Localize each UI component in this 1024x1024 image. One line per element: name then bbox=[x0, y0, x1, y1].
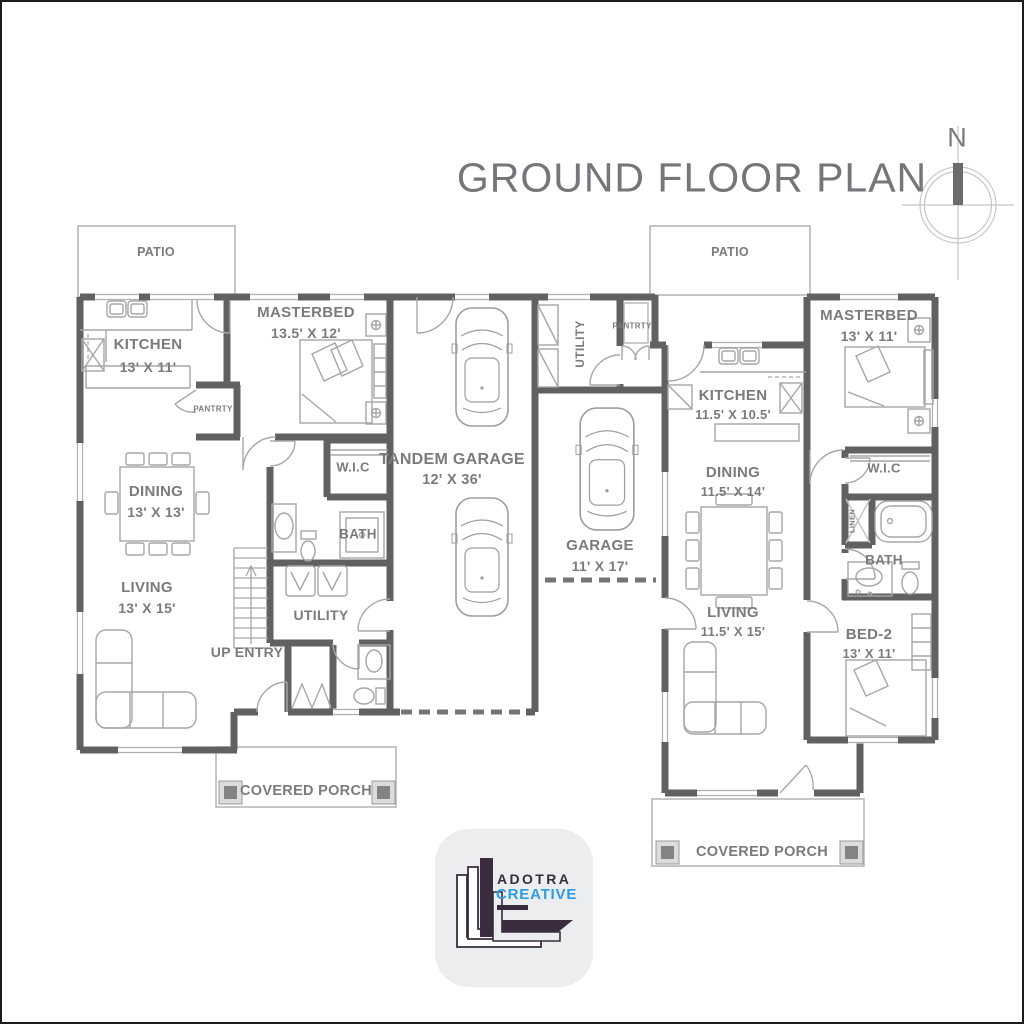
label-patio-left: PATIO bbox=[137, 245, 175, 259]
dining-right-table bbox=[686, 494, 782, 608]
label-masterbed-left: MASTERBED 13.5' X 12' bbox=[257, 303, 355, 343]
adotra-creative-logo: ADOTRA CREATIVE bbox=[435, 829, 593, 987]
door-living-garage-right bbox=[665, 598, 696, 629]
toilet-bowl bbox=[902, 572, 918, 594]
door-bed2 bbox=[807, 601, 838, 632]
toilet-tank bbox=[301, 531, 316, 539]
door-masterbed-right bbox=[810, 450, 844, 484]
label-masterbed-right: MASTERBED 13' X 11' bbox=[820, 306, 918, 346]
compass-north-label: N bbox=[947, 123, 967, 154]
label-pantry-right: PANTRTY bbox=[612, 322, 651, 331]
label-tandem-garage: TANDEM GARAGE 12' X 36' bbox=[379, 450, 525, 490]
car-icon bbox=[576, 408, 638, 530]
label-bath-right: BATH bbox=[865, 553, 903, 568]
garage-doors bbox=[401, 580, 656, 712]
door-hall-bath-left bbox=[270, 441, 295, 466]
bed-icon bbox=[846, 660, 926, 736]
label-garage-right: GARAGE 11' X 17' bbox=[566, 535, 634, 577]
door-masterbed-left bbox=[243, 437, 276, 470]
label-porch-right: COVERED PORCH bbox=[696, 844, 828, 860]
page-title: GROUND FLOOR PLAN bbox=[457, 155, 927, 202]
toilet-bowl bbox=[301, 541, 315, 561]
door-utility-garage bbox=[358, 599, 390, 631]
label-living-left: LIVING 13' X 15' bbox=[118, 578, 176, 618]
label-linen: LINEN bbox=[848, 509, 857, 533]
label-bed2: BED-2 13' X 11' bbox=[843, 625, 896, 663]
washer-dryer-icon bbox=[286, 566, 347, 596]
label-porch-left: COVERED PORCH bbox=[240, 783, 372, 799]
label-kitchen-right: KITCHEN 11.5' X 10.5' bbox=[695, 386, 771, 424]
label-up-entry: UP ENTRY bbox=[211, 644, 283, 660]
logo-brand-name: ADOTRA bbox=[497, 871, 571, 887]
stairs-up-entry bbox=[234, 548, 268, 648]
door-entry-right bbox=[780, 765, 813, 793]
label-utility-right: UTILITY bbox=[573, 320, 587, 367]
door-tandem-side bbox=[417, 297, 453, 333]
sink-oval-icon bbox=[275, 513, 293, 539]
logo-divider-bar bbox=[497, 905, 528, 910]
door-pantry-right bbox=[622, 346, 649, 360]
label-kitchen-left: KITCHEN 13' X 11' bbox=[114, 334, 183, 378]
sofa-right-icon bbox=[684, 642, 766, 734]
door-entry-left bbox=[257, 682, 287, 712]
logo-brand-tagline: CREATIVE bbox=[496, 886, 577, 903]
door-powder bbox=[333, 643, 359, 669]
label-patio-right: PATIO bbox=[711, 245, 749, 259]
island-icon bbox=[715, 424, 799, 441]
door-wic-right bbox=[845, 458, 870, 483]
toilet-tank bbox=[902, 562, 919, 569]
label-wic-right: W.I.C bbox=[867, 461, 900, 476]
bed-icon bbox=[300, 340, 372, 423]
car-icon bbox=[452, 498, 512, 616]
patio-right-outline bbox=[650, 226, 810, 295]
label-dining-left: DINING 13' X 13' bbox=[127, 482, 185, 522]
bathtub-icon bbox=[875, 501, 932, 542]
label-pantry-left: PANTRTY bbox=[193, 405, 232, 414]
door-utility-right bbox=[590, 355, 620, 385]
label-bath-left: BATH bbox=[339, 527, 377, 542]
bifold-closet bbox=[292, 684, 331, 708]
floor-plan-page: GROUND FLOOR PLAN N PATIO KITCHEN 13' X … bbox=[0, 0, 1024, 1024]
sofa-left-icon bbox=[96, 630, 196, 728]
label-dining-right: DINING 11.5' X 14' bbox=[701, 463, 765, 501]
patio-left-outline bbox=[78, 226, 235, 297]
label-living-right: LIVING 11.5' X 15' bbox=[701, 603, 765, 641]
label-wic-left: W.I.C bbox=[336, 460, 369, 475]
car-icon bbox=[452, 308, 512, 426]
door-kitchen-patio-right bbox=[668, 345, 704, 381]
utility-right-shelves bbox=[538, 305, 558, 387]
label-utility-left: UTILITY bbox=[294, 607, 349, 623]
